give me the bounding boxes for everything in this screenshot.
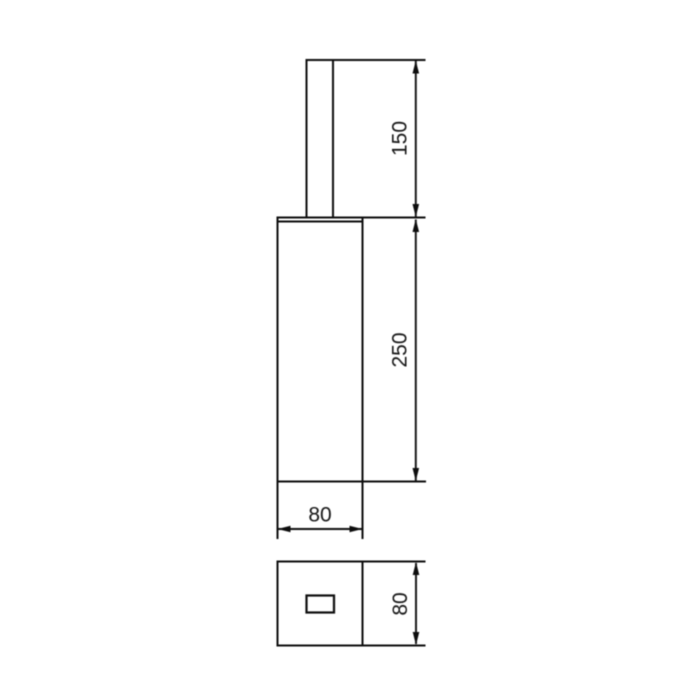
svg-text:80: 80 [308, 504, 331, 527]
svg-text:250: 250 [389, 332, 412, 367]
svg-text:80: 80 [389, 592, 412, 615]
svg-text:150: 150 [389, 121, 412, 156]
